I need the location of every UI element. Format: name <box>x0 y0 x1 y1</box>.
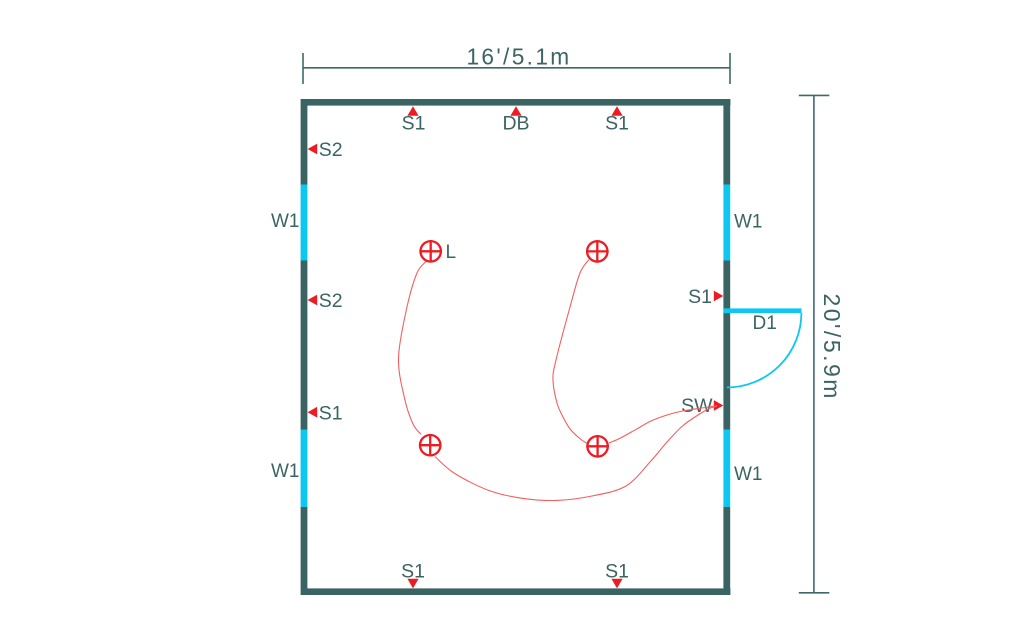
svg-text:SW: SW <box>681 395 713 417</box>
svg-text:W1: W1 <box>271 461 300 482</box>
svg-text:S1: S1 <box>688 286 712 308</box>
svg-text:W1: W1 <box>271 211 300 232</box>
svg-text:S1: S1 <box>401 560 425 582</box>
svg-text:S2: S2 <box>319 139 343 161</box>
svg-text:S1: S1 <box>605 113 629 135</box>
svg-text:S1: S1 <box>319 402 343 424</box>
svg-text:S1: S1 <box>402 113 426 135</box>
svg-text:16'/5.1m: 16'/5.1m <box>466 43 571 69</box>
svg-text:D1: D1 <box>753 313 777 334</box>
svg-text:20'/5.9m: 20'/5.9m <box>819 293 845 401</box>
svg-text:L: L <box>446 242 457 263</box>
svg-text:W1: W1 <box>734 211 763 232</box>
svg-text:W1: W1 <box>734 464 763 485</box>
svg-text:S2: S2 <box>319 290 343 312</box>
svg-text:DB: DB <box>502 113 529 135</box>
svg-text:S1: S1 <box>605 560 629 582</box>
